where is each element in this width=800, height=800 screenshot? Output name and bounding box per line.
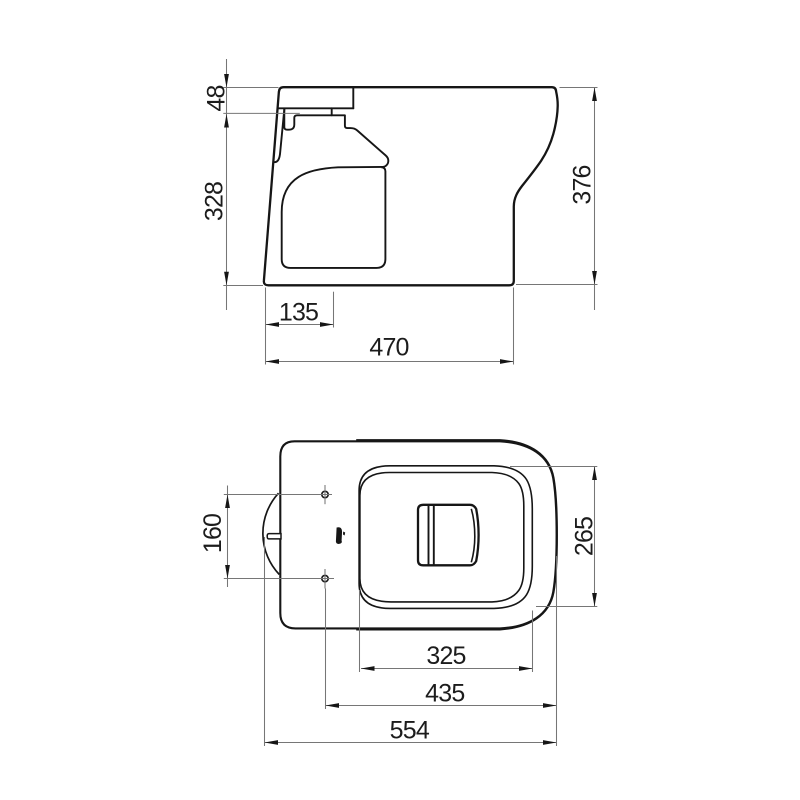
- svg-text:376: 376: [569, 165, 597, 204]
- svg-text:265: 265: [571, 517, 599, 556]
- svg-text:325: 325: [426, 642, 465, 670]
- svg-text:48: 48: [203, 85, 231, 111]
- svg-text:435: 435: [425, 680, 464, 708]
- svg-text:328: 328: [201, 182, 229, 221]
- svg-text:135: 135: [279, 298, 318, 326]
- svg-text:554: 554: [390, 717, 430, 745]
- svg-text:160: 160: [199, 514, 227, 553]
- svg-text:470: 470: [369, 333, 408, 361]
